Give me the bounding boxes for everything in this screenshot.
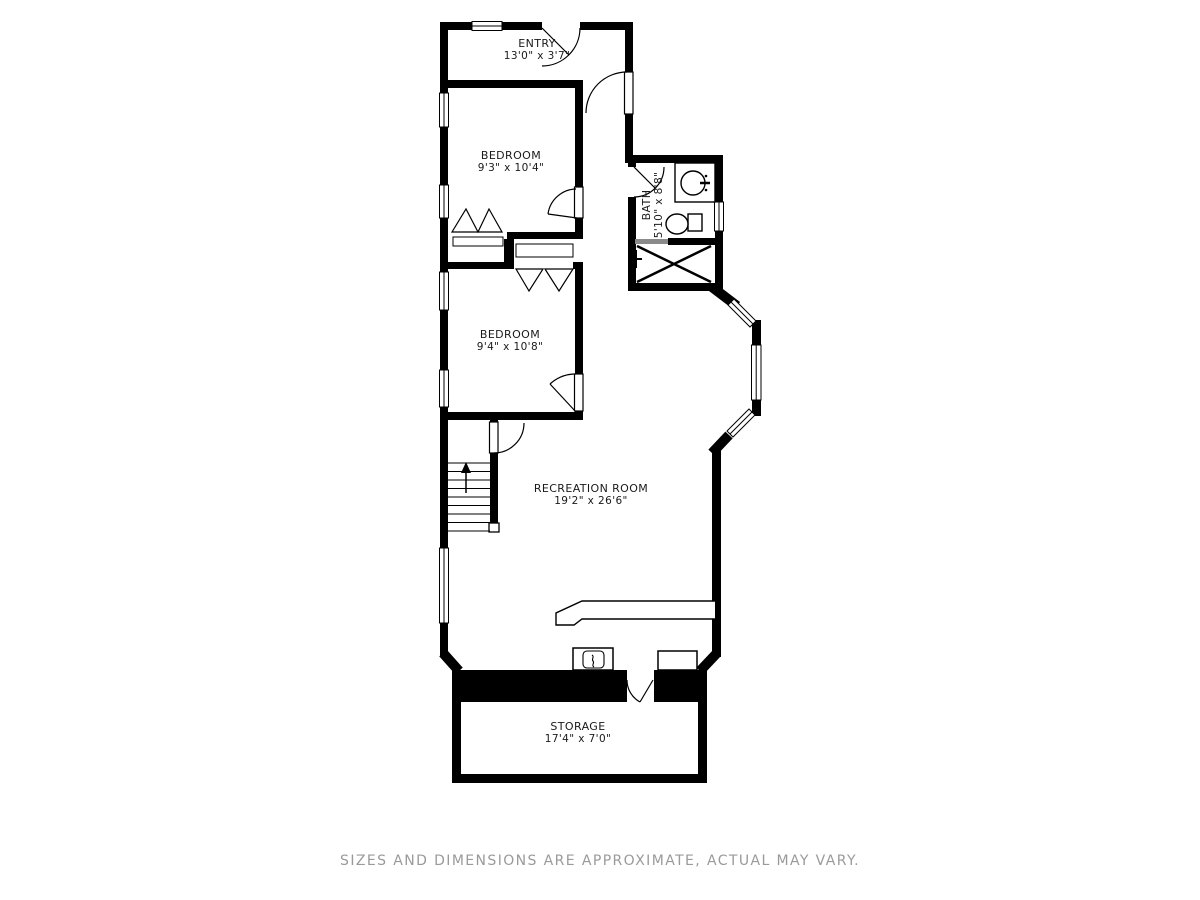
- floor-plan: ENTRY 13'0" x 3'7" BEDROOM 9'3" x 10'4" …: [0, 0, 1200, 900]
- storage-passthrough: [658, 651, 697, 670]
- room-dims: 9'3" x 10'4": [478, 162, 545, 175]
- room-dims: 17'4" x 7'0": [545, 733, 612, 746]
- shower-x-box: [637, 246, 711, 282]
- room-name: ENTRY: [504, 37, 571, 50]
- floor-plan-drawing: [0, 0, 1200, 900]
- room-label-recreation: RECREATION ROOM 19'2" x 26'6": [534, 482, 648, 508]
- stair-wall-endcap: [489, 523, 499, 532]
- disclaimer-text: SIZES AND DIMENSIONS ARE APPROXIMATE, AC…: [340, 853, 860, 869]
- room-name: STORAGE: [545, 720, 612, 733]
- room-label-entry: ENTRY 13'0" x 3'7": [504, 37, 571, 63]
- stairs: [448, 463, 490, 531]
- toilet: [666, 214, 702, 234]
- room-dims: 19'2" x 26'6": [534, 495, 648, 508]
- shower-sliding-door: [635, 239, 668, 244]
- room-dims: 9'4" x 10'8": [477, 341, 544, 354]
- room-name: BEDROOM: [478, 149, 545, 162]
- room-label-storage: STORAGE 17'4" x 7'0": [545, 720, 612, 746]
- room-label-bath: BATH 5'10" x 8'8": [640, 172, 666, 239]
- room-label-bedroom-lower: BEDROOM 9'4" x 10'8": [477, 328, 544, 354]
- bar-counter: [556, 601, 715, 625]
- room-dims: 13'0" x 3'7": [504, 50, 571, 63]
- room-label-bedroom-upper: BEDROOM 9'3" x 10'4": [478, 149, 545, 175]
- furnace: [573, 648, 613, 670]
- vanity-sink: [675, 163, 715, 202]
- wall-openings: [448, 22, 654, 702]
- room-name: BEDROOM: [477, 328, 544, 341]
- room-dims: 5'10" x 8'8": [653, 172, 666, 239]
- room-name: RECREATION ROOM: [534, 482, 648, 495]
- room-name: BATH: [640, 172, 653, 239]
